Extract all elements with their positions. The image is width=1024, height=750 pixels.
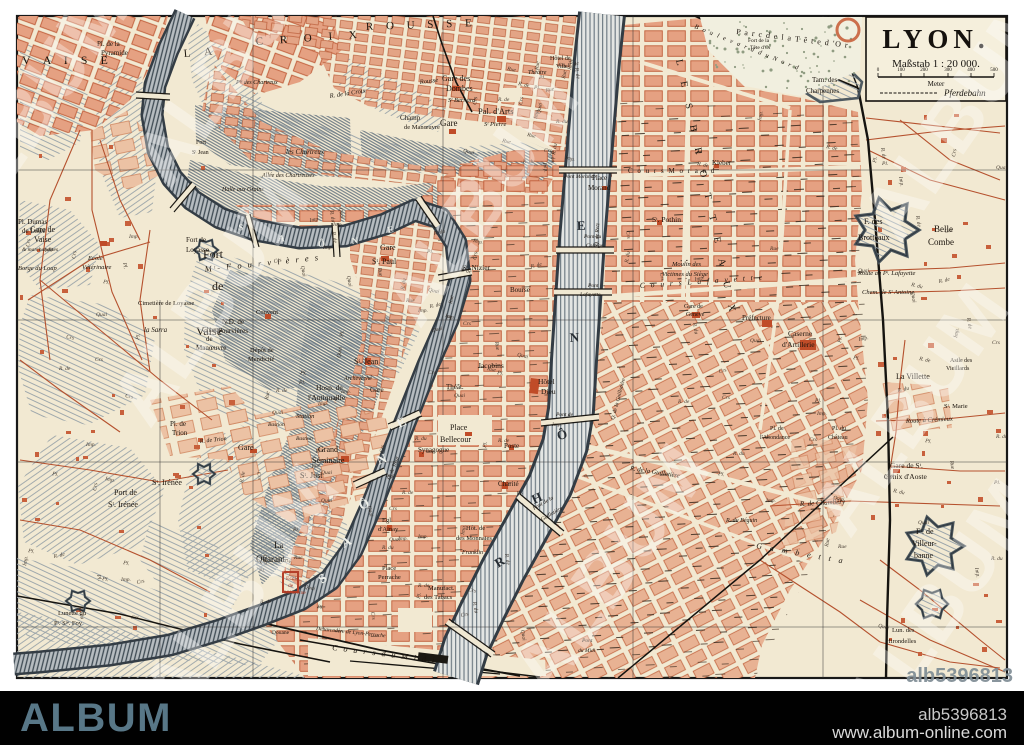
svg-text:R. du: R. du (381, 545, 394, 551)
svg-text:Crs: Crs (131, 615, 139, 621)
svg-text:Franklin: Franklin (461, 550, 483, 556)
svg-text:Borge du Loup: Borge du Loup (18, 265, 58, 272)
svg-text:Douane: Douane (272, 630, 290, 636)
svg-text:Pl. de: Pl. de (770, 426, 784, 432)
svg-text:Pl.: Pl. (121, 261, 128, 269)
svg-text:Q. de Retz: Q. de Retz (594, 222, 601, 246)
svg-text:Place: Place (592, 174, 607, 182)
svg-text:Crs: Crs (389, 506, 397, 512)
svg-text:Trion: Trion (172, 429, 188, 437)
svg-text:R. de: R. de (497, 438, 510, 444)
svg-text:Bourse: Bourse (510, 286, 530, 294)
svg-text:Fort de la: Fort de la (748, 38, 770, 44)
svg-text:200: 200 (920, 68, 928, 73)
svg-text:d'Ainay: d'Ainay (378, 526, 399, 533)
svg-text:R. de: R. de (275, 388, 288, 394)
svg-text:R. du Béguin: R. du Béguin (725, 518, 757, 524)
svg-text:Kleber: Kleber (712, 159, 732, 167)
svg-text:Gare des: Gare des (442, 74, 470, 83)
svg-text:Pont Morand: Pont Morand (563, 174, 594, 180)
svg-text:Genève: Genève (686, 312, 705, 318)
svg-text:Imp.: Imp. (85, 442, 96, 448)
svg-text:des Tabacs: des Tabacs (424, 594, 453, 601)
svg-text:Pl.: Pl. (416, 592, 423, 600)
svg-text:Quai: Quai (750, 338, 761, 344)
svg-text:Moulin des: Moulin des (671, 261, 702, 268)
svg-text:Imp.: Imp. (332, 222, 343, 228)
svg-text:Imp.: Imp. (816, 411, 827, 417)
svg-text:Hosp. de: Hosp. de (316, 383, 343, 392)
svg-text:Quai: Quai (272, 410, 283, 416)
svg-text:les Chartreux: les Chartreux (286, 148, 325, 156)
svg-text:Imp.: Imp. (317, 401, 328, 407)
svg-text:Caserne: Caserne (788, 329, 813, 338)
svg-text:www.album-online.com: www.album-online.com (831, 723, 1007, 742)
svg-text:d'Artillerie: d'Artillerie (782, 340, 815, 349)
svg-text:Tam. des: Tam. des (812, 76, 837, 84)
svg-text:N: N (569, 329, 580, 345)
svg-text:Crs: Crs (428, 370, 436, 376)
svg-text:Imp.: Imp. (385, 473, 396, 479)
svg-text:des Monnaies: des Monnaies (456, 535, 492, 542)
svg-text:Quai: Quai (96, 312, 107, 318)
svg-text:Sᵗ. Pothin: Sᵗ. Pothin (652, 215, 681, 224)
svg-text:Quai: Quai (454, 393, 465, 399)
svg-text:R. de: R. de (58, 366, 71, 372)
svg-text:Pl.: Pl. (482, 441, 489, 449)
svg-text:Charité: Charité (498, 480, 519, 488)
svg-text:Imp.: Imp. (120, 577, 131, 583)
svg-text:Chem. de Sᵗ Antoine: Chem. de Sᵗ Antoine (862, 289, 914, 296)
svg-text:R. de: R. de (401, 490, 414, 496)
svg-text:Pl.: Pl. (339, 330, 346, 338)
svg-text:Pl.: Pl. (837, 336, 844, 344)
svg-text:Pont de: Pont de (555, 412, 574, 418)
svg-text:Gare de: Gare de (30, 225, 56, 234)
svg-text:Bellecour: Bellecour (440, 435, 471, 444)
svg-text:Place: Place (450, 423, 468, 432)
svg-text:Gare: Gare (238, 443, 254, 452)
svg-text:Perrache: Perrache (378, 574, 401, 581)
svg-text:Sᵗ. Irénée: Sᵗ. Irénée (152, 478, 182, 487)
svg-text:l'Abondance: l'Abondance (760, 435, 790, 441)
svg-text:Pl.: Pl. (298, 380, 305, 386)
svg-text:Port de: Port de (114, 488, 137, 497)
svg-text:ALBUM: ALBUM (20, 696, 172, 740)
svg-text:Sᵗ. Irénée: Sᵗ. Irénée (108, 500, 138, 509)
svg-text:Rue: Rue (837, 544, 847, 550)
svg-text:Synagogue: Synagogue (418, 446, 449, 454)
svg-text:Imp.: Imp. (765, 498, 776, 504)
svg-text:Champ: Champ (400, 114, 421, 122)
svg-text:Imp.: Imp. (340, 389, 351, 395)
svg-text:Vaise: Vaise (34, 235, 52, 244)
svg-text:Couvent: Couvent (256, 309, 278, 316)
svg-text:Quai: Quai (918, 520, 929, 526)
svg-text:Charpennes: Charpennes (806, 87, 839, 95)
svg-text:R. du: R. du (995, 434, 1008, 440)
svg-text:Bastion: Bastion (296, 436, 313, 442)
svg-text:Combe: Combe (928, 237, 954, 247)
svg-text:Crs: Crs (722, 395, 730, 401)
svg-text:Bastion: Bastion (268, 422, 285, 428)
svg-text:Mendicité: Mendicité (248, 356, 274, 363)
svg-text:Dépôt de: Dépôt de (250, 347, 274, 354)
svg-text:Dieu: Dieu (541, 387, 556, 396)
svg-text:Gare: Gare (440, 118, 458, 128)
svg-text:Quai: Quai (858, 268, 869, 274)
svg-text:E: E (577, 218, 586, 233)
svg-text:Rue: Rue (769, 246, 779, 252)
svg-text:Dombes: Dombes (446, 84, 473, 93)
svg-text:Pᵗ. Sᵗᵉ. Foy: Pᵗ. Sᵗᵉ. Foy (54, 620, 83, 627)
svg-text:Sᵗ. Jean: Sᵗ. Jean (354, 357, 378, 366)
svg-text:Lafayette: Lafayette (579, 291, 601, 298)
svg-text:Pont: Pont (587, 283, 599, 289)
svg-text:Station: Station (296, 413, 314, 420)
svg-text:Préfecture: Préfecture (742, 314, 771, 322)
svg-text:Théât.: Théât. (446, 383, 464, 391)
svg-text:de Manœuvre: de Manœuvre (404, 124, 440, 131)
svg-text:Ecole: Ecole (87, 255, 103, 262)
svg-text:100: 100 (897, 68, 905, 73)
svg-text:R. de: R. de (417, 583, 430, 589)
svg-text:R. du: R. du (732, 451, 745, 457)
svg-text:Fᵗ. de: Fᵗ. de (916, 527, 934, 536)
svg-text:Pl.: Pl. (814, 398, 821, 404)
svg-text:Imp.: Imp. (322, 245, 333, 251)
svg-text:alb5396813: alb5396813 (906, 665, 1013, 687)
svg-text:Vétérinaire: Vétérinaire (82, 264, 111, 271)
svg-text:Hôt. de: Hôt. de (466, 525, 485, 532)
svg-text:R. de: R. de (677, 399, 690, 405)
svg-text:Archevêché: Archevêché (343, 376, 372, 382)
svg-text:R. du: R. du (414, 436, 427, 442)
svg-text:Place: Place (382, 565, 396, 572)
svg-text:Manufact.: Manufact. (428, 585, 455, 592)
svg-text:Morand: Morand (588, 184, 611, 192)
svg-text:Crs: Crs (95, 357, 103, 363)
svg-text:Imp.: Imp. (417, 534, 428, 540)
svg-text:Crs: Crs (463, 321, 471, 327)
svg-text:Quai: Quai (996, 165, 1007, 171)
svg-text:Gare de: Gare de (684, 304, 703, 310)
svg-text:Imp.: Imp. (128, 234, 139, 240)
svg-text:alb5396813: alb5396813 (918, 705, 1007, 724)
svg-text:Crs: Crs (809, 437, 817, 443)
svg-text:Hôtel: Hôtel (538, 377, 555, 386)
svg-text:Imp.: Imp. (551, 422, 562, 428)
svg-text:Imp.: Imp. (397, 536, 408, 542)
svg-text:Gare: Gare (370, 386, 384, 394)
svg-text:Egl.: Egl. (382, 517, 393, 524)
